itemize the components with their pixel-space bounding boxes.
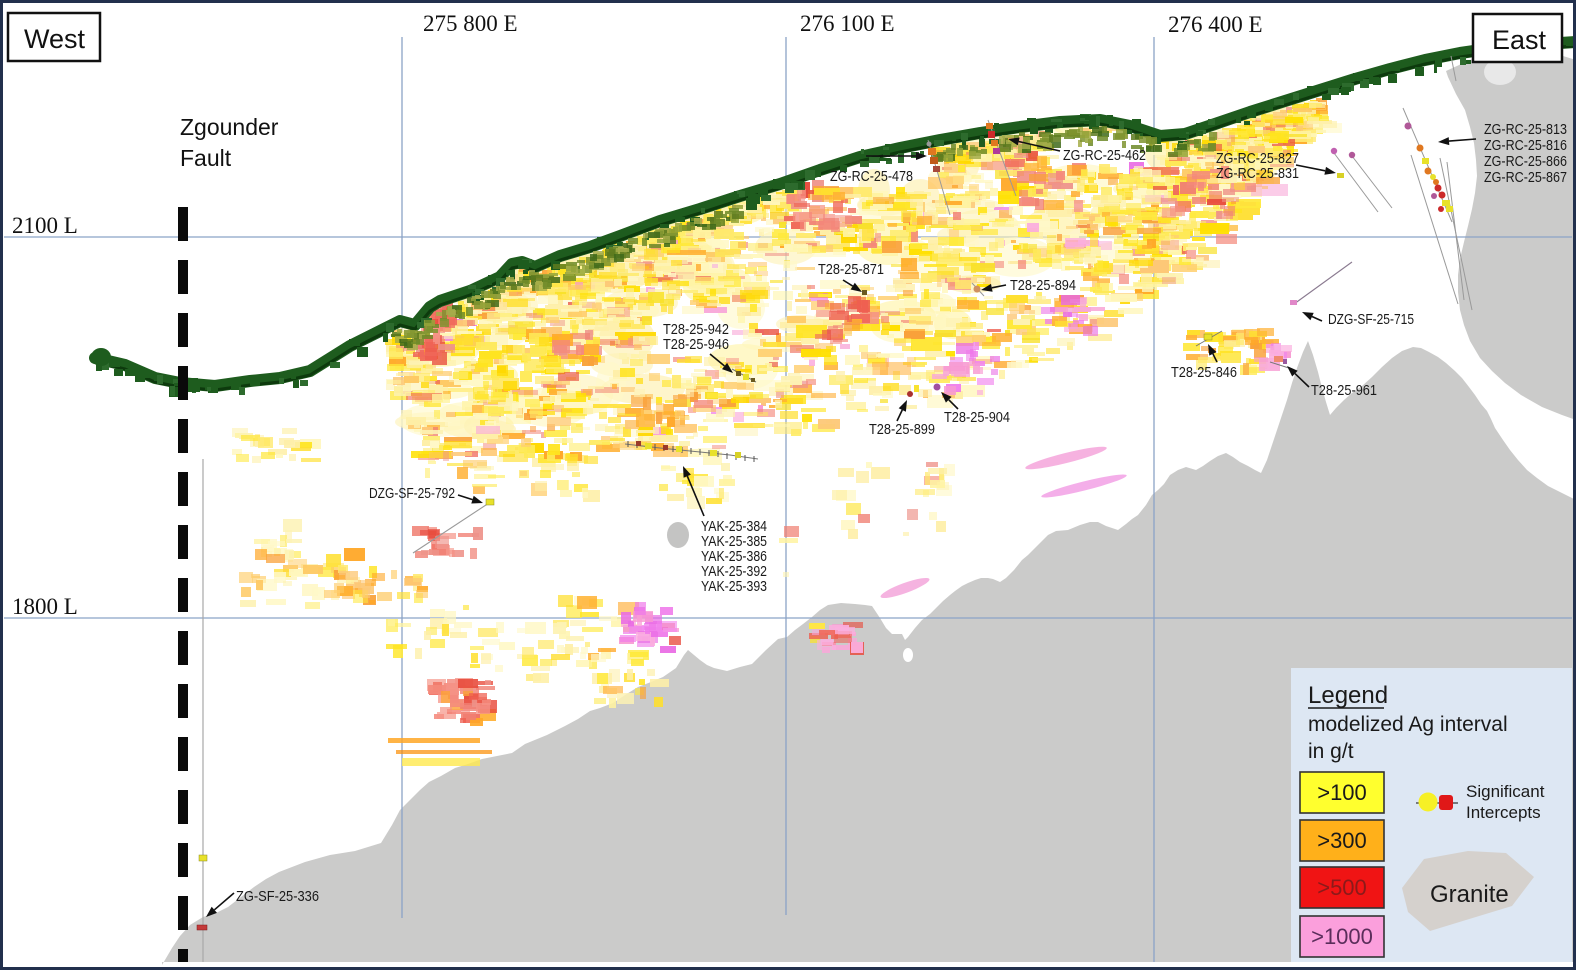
svg-text:Legend: Legend bbox=[1308, 682, 1388, 709]
svg-text:ZG-RC-25-827: ZG-RC-25-827 bbox=[1216, 151, 1299, 167]
svg-text:YAK-25-385: YAK-25-385 bbox=[701, 534, 767, 550]
svg-text:T28-25-946: T28-25-946 bbox=[663, 337, 729, 353]
svg-text:YAK-25-384: YAK-25-384 bbox=[701, 519, 767, 535]
svg-text:East: East bbox=[1492, 25, 1547, 55]
svg-text:ZG-RC-25-831: ZG-RC-25-831 bbox=[1216, 166, 1299, 182]
svg-text:T28-25-942: T28-25-942 bbox=[663, 322, 729, 338]
svg-text:modelized Ag interval: modelized Ag interval bbox=[1308, 713, 1508, 736]
svg-text:ZG-RC-25-816: ZG-RC-25-816 bbox=[1484, 138, 1567, 154]
svg-text:ZG-RC-25-866: ZG-RC-25-866 bbox=[1484, 154, 1567, 170]
svg-text:Significant: Significant bbox=[1466, 782, 1545, 801]
svg-text:275 800 E: 275 800 E bbox=[423, 11, 518, 36]
svg-text:ZG-SF-25-336: ZG-SF-25-336 bbox=[236, 889, 319, 905]
svg-text:Fault: Fault bbox=[180, 145, 232, 171]
svg-text:ZG-RC-25-478: ZG-RC-25-478 bbox=[830, 169, 913, 185]
svg-text:YAK-25-393: YAK-25-393 bbox=[701, 579, 767, 595]
svg-text:DZG-SF-25-792: DZG-SF-25-792 bbox=[369, 486, 455, 502]
svg-text:T28-25-904: T28-25-904 bbox=[944, 410, 1010, 426]
svg-text:YAK-25-386: YAK-25-386 bbox=[701, 549, 767, 565]
svg-text:>500: >500 bbox=[1317, 875, 1367, 900]
svg-text:T28-25-899: T28-25-899 bbox=[869, 422, 935, 438]
svg-text:T28-25-871: T28-25-871 bbox=[818, 262, 884, 278]
svg-text:YAK-25-392: YAK-25-392 bbox=[701, 564, 767, 580]
svg-text:1800 L: 1800 L bbox=[12, 594, 78, 619]
svg-text:T28-25-961: T28-25-961 bbox=[1311, 383, 1377, 399]
svg-text:West: West bbox=[24, 24, 86, 54]
svg-text:Intercepts: Intercepts bbox=[1466, 803, 1541, 822]
svg-text:Granite: Granite bbox=[1430, 881, 1509, 908]
svg-text:ZG-RC-25-867: ZG-RC-25-867 bbox=[1484, 170, 1567, 186]
svg-text:>1000: >1000 bbox=[1311, 924, 1373, 949]
svg-text:in g/t: in g/t bbox=[1308, 740, 1354, 763]
svg-text:ZG-RC-25-462: ZG-RC-25-462 bbox=[1063, 148, 1146, 164]
svg-text:DZG-SF-25-715: DZG-SF-25-715 bbox=[1328, 312, 1414, 328]
svg-text:276 400 E: 276 400 E bbox=[1168, 12, 1263, 37]
svg-text:Zgounder: Zgounder bbox=[180, 114, 279, 140]
svg-text:>100: >100 bbox=[1317, 780, 1367, 805]
svg-text:ZG-RC-25-813: ZG-RC-25-813 bbox=[1484, 122, 1567, 138]
svg-text:T28-25-846: T28-25-846 bbox=[1171, 365, 1237, 381]
svg-text:276 100 E: 276 100 E bbox=[800, 11, 895, 36]
svg-text:T28-25-894: T28-25-894 bbox=[1010, 278, 1076, 294]
svg-text:>300: >300 bbox=[1317, 828, 1367, 853]
svg-text:2100 L: 2100 L bbox=[12, 213, 78, 238]
